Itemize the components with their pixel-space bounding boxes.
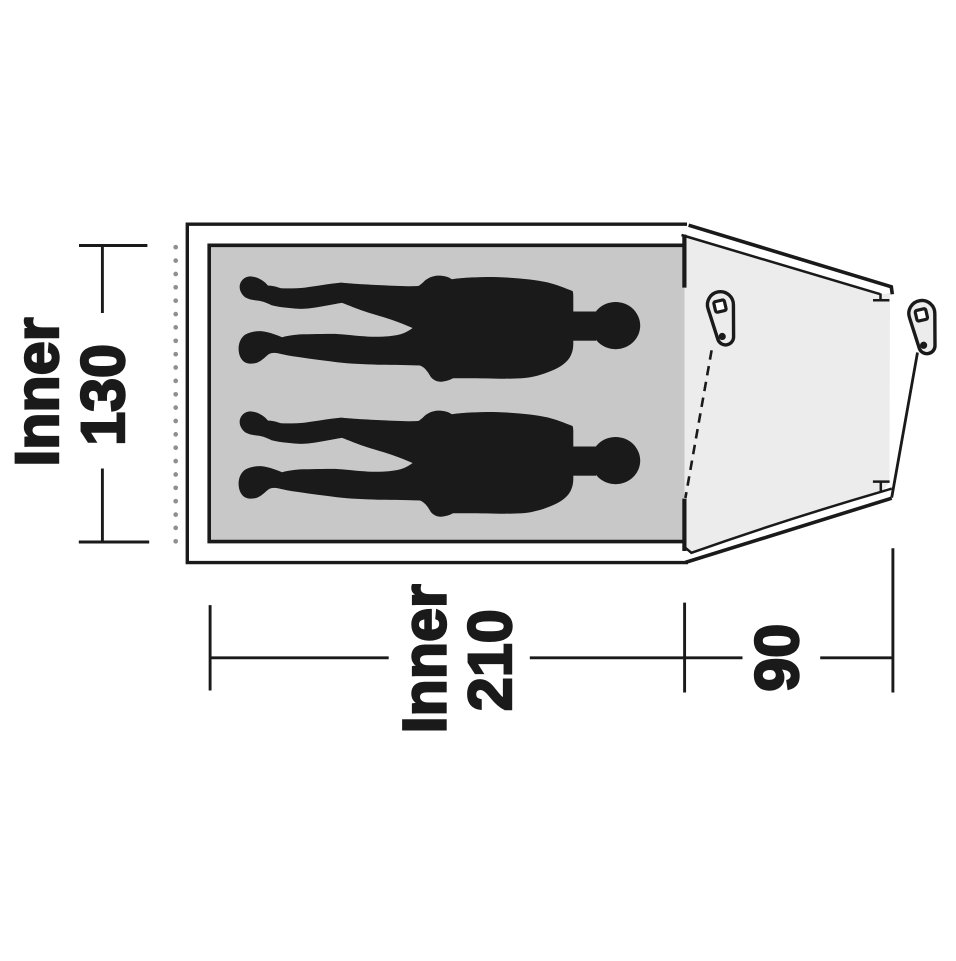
svg-text:210: 210 xyxy=(456,609,524,711)
svg-text:Inner: Inner xyxy=(3,318,71,467)
svg-text:130: 130 xyxy=(69,344,137,446)
svg-text:Inner: Inner xyxy=(391,584,459,733)
svg-text:90: 90 xyxy=(743,624,811,692)
